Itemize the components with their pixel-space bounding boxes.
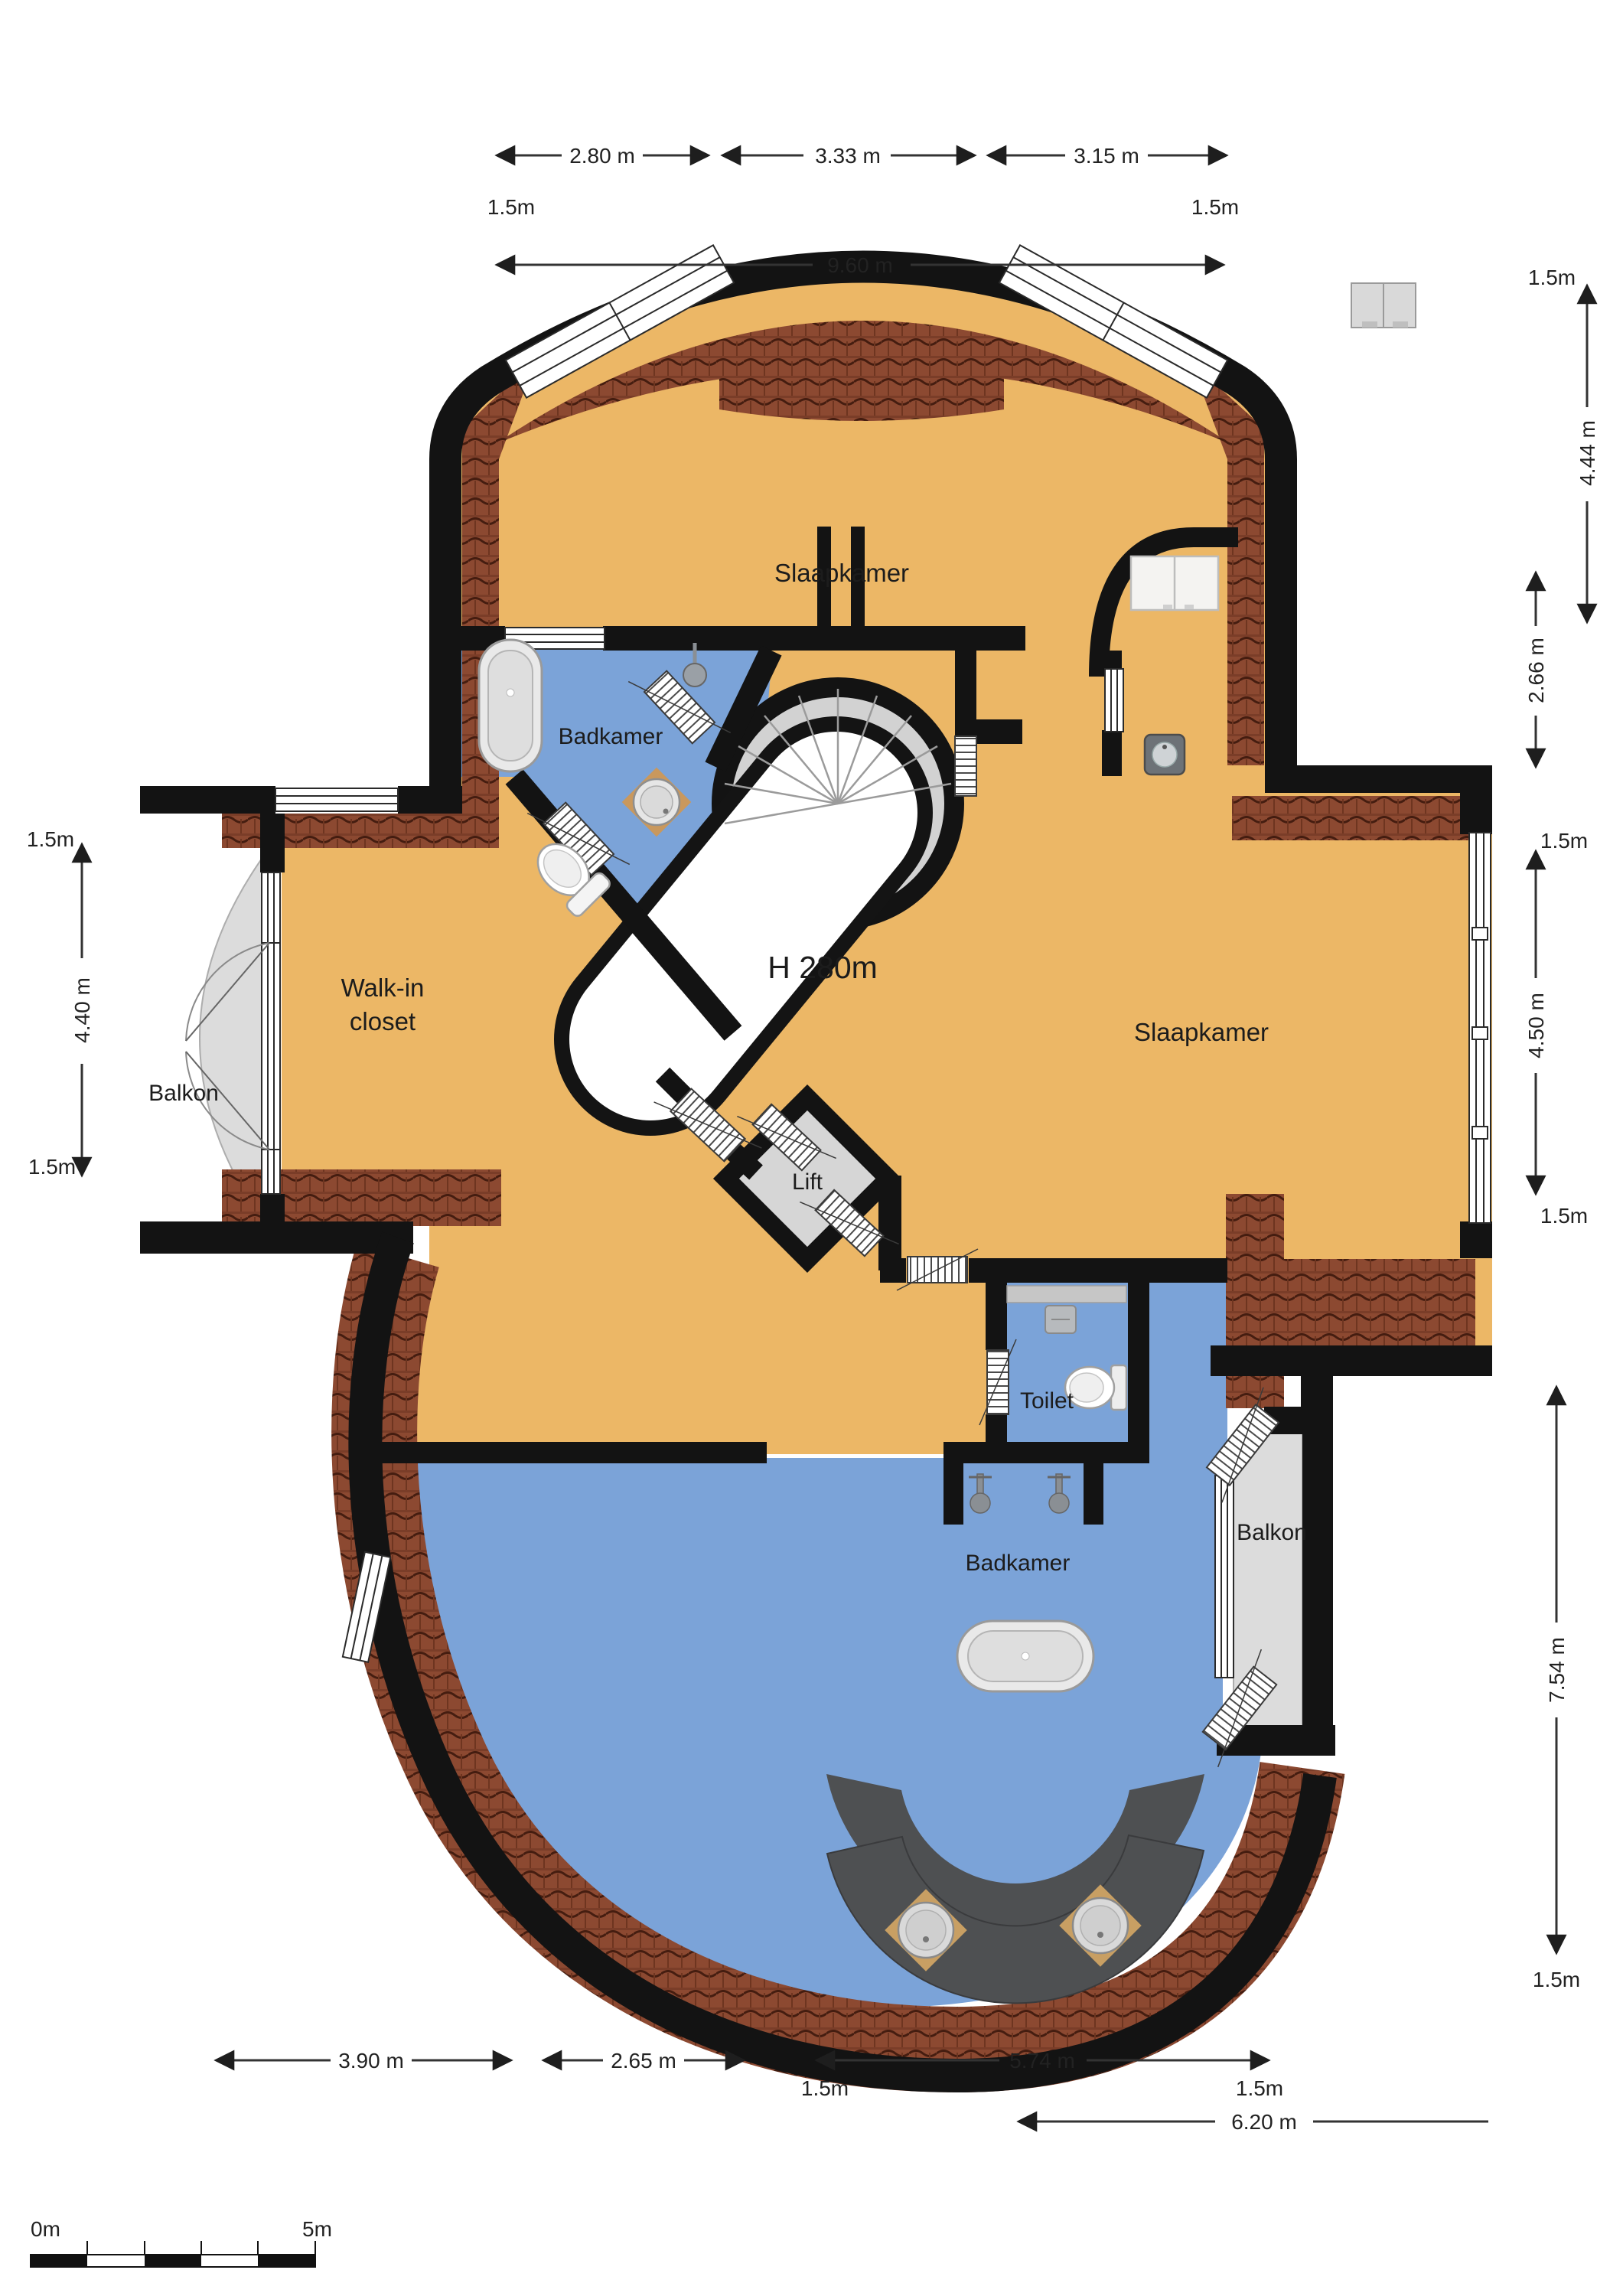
- dim-right-upper: 4.44 m: [1576, 420, 1599, 486]
- dim-left-height: 4.40 m: [70, 977, 94, 1043]
- window-balcony-right-strip: [1215, 1476, 1234, 1678]
- label-balcony-right: Balkon: [1237, 1520, 1307, 1545]
- dim-top-margin-left: 1.5m: [487, 195, 535, 219]
- dim-bottom-total: 6.20 m: [1231, 2110, 1297, 2134]
- label-balcony-left: Balkon: [148, 1081, 219, 1106]
- dim-bottom-mid: 2.65 m: [611, 2049, 676, 2073]
- dim-left-margin-top: 1.5m: [27, 827, 74, 851]
- dim-bottom-margin-left: 1.5m: [801, 2076, 849, 2100]
- dim-top-2: 3.33 m: [815, 144, 881, 168]
- scale-end: 5m: [302, 2217, 332, 2241]
- dim-top-1: 2.80 m: [569, 144, 635, 168]
- dim-bottom-margin-right: 1.5m: [1236, 2076, 1283, 2100]
- dim-right-margin-mid-bottom: 1.5m: [1540, 1204, 1588, 1228]
- scale-start: 0m: [31, 2217, 60, 2241]
- sink-nook-icon: [1145, 735, 1185, 775]
- label-bedroom-top: Slaapkamer: [774, 559, 909, 587]
- label-toilet: Toilet: [1020, 1388, 1074, 1414]
- dim-top-3: 3.15 m: [1074, 144, 1139, 168]
- dim-right-margin-top: 1.5m: [1528, 266, 1576, 289]
- label-bathroom-top: Badkamer: [559, 724, 663, 749]
- label-ceiling-height: H 280m: [768, 950, 878, 985]
- dim-right-lower: 7.54 m: [1545, 1637, 1569, 1703]
- label-walk-in-line2: closet: [350, 1007, 416, 1035]
- dim-left-margin-bottom: 1.5m: [28, 1155, 76, 1179]
- label-lift: Lift: [792, 1169, 823, 1195]
- dim-right-margin-bottom: 1.5m: [1533, 1968, 1580, 1991]
- dim-bottom-left: 3.90 m: [338, 2049, 404, 2073]
- roof-band-bedroom-right-top: [1232, 796, 1475, 840]
- dim-right-margin-mid-top: 1.5m: [1540, 829, 1588, 853]
- door-hall-bedroom-top: [955, 736, 976, 796]
- toilet-room-toilet-icon: [1065, 1365, 1126, 1410]
- dim-bottom-bath: 5.74 m: [1009, 2049, 1075, 2073]
- window-nook: [1105, 669, 1123, 732]
- dim-right-mid: 2.66 m: [1524, 638, 1548, 703]
- cabinet-top-bedroom-icon: [1131, 556, 1218, 610]
- dim-top-margin-right: 1.5m: [1191, 195, 1239, 219]
- label-walk-in-line1: Walk-in: [341, 974, 425, 1002]
- floorplan-page: Slaapkamer Badkamer Walk-in closet Balko…: [0, 0, 1623, 2296]
- roof-band-arch-center: [719, 341, 1004, 421]
- floorplan-drawing: Slaapkamer Badkamer Walk-in closet Balko…: [0, 0, 1623, 2296]
- window-balcony-left-wall: [262, 872, 280, 1194]
- bathtub-bottom-icon: [957, 1621, 1093, 1691]
- dim-top-total: 9.60 m: [827, 253, 893, 277]
- window-closet-top: [275, 788, 398, 811]
- label-bedroom-right: Slaapkamer: [1134, 1018, 1269, 1046]
- scale-bar: 0m 5m: [31, 2217, 332, 2267]
- window-bedroom-right: [1469, 833, 1491, 1223]
- dim-right-bedroom: 4.50 m: [1524, 993, 1548, 1058]
- bathtub-top-icon: [479, 640, 542, 771]
- skylight-box-icon: [1351, 283, 1416, 328]
- label-bathroom-bottom: Badkamer: [966, 1551, 1071, 1576]
